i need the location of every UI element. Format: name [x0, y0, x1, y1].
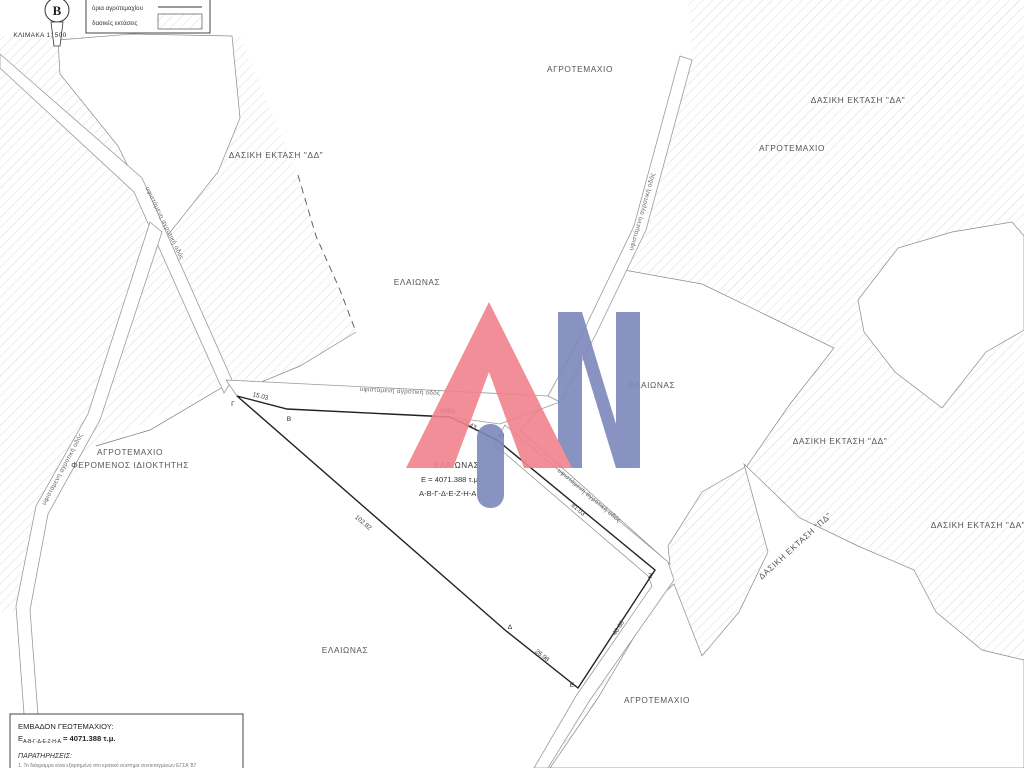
label-agrotemaxio-topright: ΑΓΡΟΤΕΜΑΧΙΟ [759, 143, 825, 153]
parcel-area-label: Ε = 4071.388 τ.μ. [421, 475, 480, 484]
legend-item-boundary-label: όρια αγροτεμαχίου [92, 5, 144, 12]
vertex-label-d: Δ [508, 624, 513, 631]
label-dasiki-da-right: ΔΑΣΙΚΗ ΕΚΤΑΣΗ "ΔΑ" [931, 520, 1024, 530]
legend-box: όρια αγροτεμαχίου δασικές εκτάσεις [86, 0, 210, 33]
scale-label: ΚΛΙΜΑΚΑ 1: 500 [13, 32, 66, 39]
label-agrotemaxio-left-1: ΑΓΡΟΤΕΜΑΧΙΟ [97, 447, 163, 457]
label-elaionas-center: ΕΛΑΙΩΝΑΣ [394, 277, 441, 287]
legend-item-forest-label: δασικές εκτάσεις [92, 20, 138, 27]
label-dasiki-da-top: ΔΑΣΙΚΗ ΕΚΤΑΣΗ "ΔΑ" [811, 95, 906, 105]
vertex-label-b: Β [287, 416, 292, 423]
info-remarks-title: ΠΑΡΑΤΗΡΗΣΕΙΣ: [18, 753, 72, 760]
label-agrotemaxio-top: ΑΓΡΟΤΕΜΑΧΙΟ [547, 64, 613, 74]
north-arrow-letter: Β [53, 3, 62, 18]
label-dasiki-dd-left: ΔΑΣΙΚΗ ΕΚΤΑΣΗ "ΔΔ" [229, 150, 324, 160]
label-agrotemaxio-bottomright: ΑΓΡΟΤΕΜΑΧΙΟ [624, 695, 690, 705]
info-box: ΕΜΒΑΔΟΝ ΓΕΩΤΕΜΑΧΙΟΥ: ΕΑ-Β-Γ-Δ-Ε-Ζ-Η-Α = … [10, 714, 243, 768]
survey-map-page: υφιστάμενη αγροτική οδός υφιστάμενη αγρο… [0, 0, 1024, 768]
info-remark-1: 1. Το διάγραμμα είναι εξαρτημένο στο κρα… [18, 762, 196, 768]
survey-map-canvas: υφιστάμενη αγροτική οδός υφιστάμενη αγρο… [0, 0, 1024, 768]
info-area-value: = 4071.388 τ.μ. [61, 734, 116, 743]
label-agrotemaxio-left-2: ΦΕΡΟΜΕΝΟΣ ΙΔΙΟΚΤΗΤΗΣ [71, 460, 189, 470]
info-area-subscript: Α-Β-Γ-Δ-Ε-Ζ-Η-Α [23, 739, 61, 745]
logo-bar [477, 424, 504, 508]
label-elaionas-bottom: ΕΛΑΙΩΝΑΣ [322, 645, 369, 655]
measurement-gd: 102.82 [353, 514, 373, 532]
vertex-label-e: Ε [570, 682, 575, 689]
vertex-label-g: Γ [231, 401, 235, 408]
parcel-vertex-sequence: Α-Β-Γ-Δ-Ε-Ζ-Η-Α [419, 489, 477, 498]
vertex-label-z: Ζ [648, 573, 652, 580]
legend-hatch-swatch [158, 14, 202, 29]
label-dasiki-dd-right: ΔΑΣΙΚΗ ΕΚΤΑΣΗ "ΔΔ" [793, 436, 888, 446]
info-title: ΕΜΒΑΔΟΝ ΓΕΩΤΕΜΑΧΙΟΥ: [18, 722, 114, 731]
measurement-de: 26.98 [533, 648, 550, 664]
